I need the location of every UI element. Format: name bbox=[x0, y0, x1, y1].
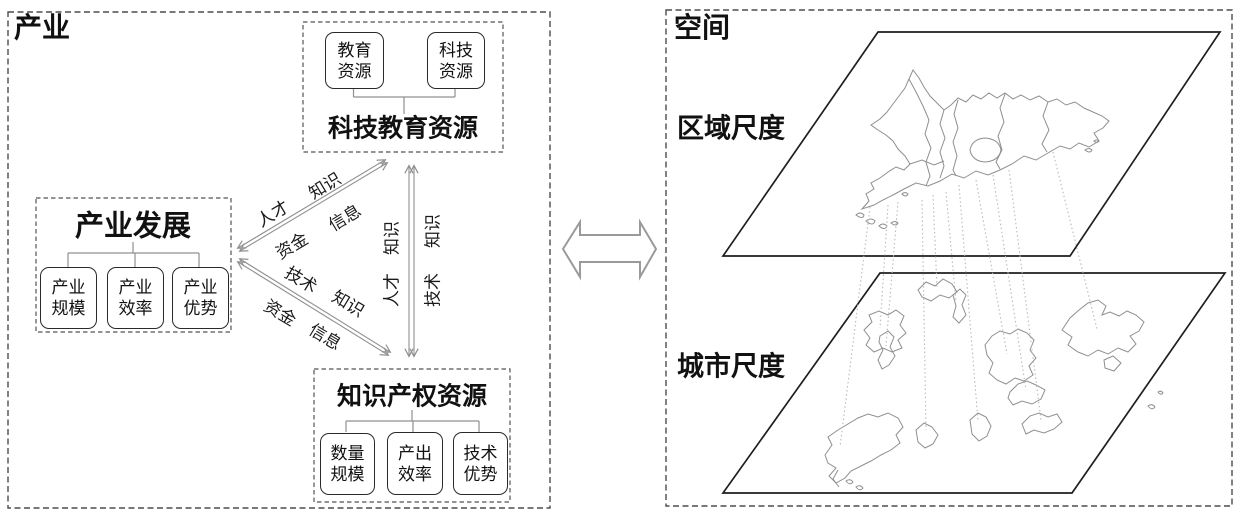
node-quantity-scale: 数量 规模 bbox=[320, 433, 375, 495]
arrow-dev-techedu-b bbox=[240, 163, 387, 251]
bidirectional-arrow-icon bbox=[563, 222, 656, 277]
industry-dev-tree-connector bbox=[68, 242, 199, 267]
diagram-graphics bbox=[0, 0, 1242, 517]
regional-scale-plane bbox=[723, 32, 1220, 256]
flow-label-talent-2: 人才 bbox=[384, 273, 401, 307]
node-science-tech-resources: 科技 资源 bbox=[427, 32, 485, 89]
regional-map-islets bbox=[856, 140, 1099, 229]
city-scale-label: 城市尺度 bbox=[677, 345, 785, 384]
flow-label-technology-2: 技术 bbox=[425, 273, 442, 307]
node-industry-advantage: 产业 优势 bbox=[172, 267, 229, 329]
ip-tree-connector bbox=[346, 410, 479, 432]
flow-label-knowledge-3: 知识 bbox=[384, 221, 401, 255]
ip-group-title: 知识产权资源 bbox=[337, 385, 487, 410]
space-panel-label: 空间 bbox=[674, 14, 730, 42]
arrow-dev-techedu-a bbox=[238, 160, 385, 248]
tech-edu-tree-connector bbox=[354, 87, 456, 114]
regional-scale-label: 区域尺度 bbox=[677, 107, 785, 146]
city-scale-plane bbox=[723, 273, 1225, 493]
space-panel-border bbox=[666, 10, 1232, 506]
node-industry-scale: 产业 规模 bbox=[40, 267, 97, 329]
industry-dev-group-title: 产业发展 bbox=[75, 213, 191, 242]
scale-projection-lines bbox=[840, 152, 1097, 447]
node-industry-efficiency: 产业 效率 bbox=[107, 267, 164, 329]
diagram-canvas: 产业 教育 资源 科技 资源 科技教育资源 产业发展 产业 规模 产业 效率 产… bbox=[0, 0, 1242, 517]
node-output-efficiency: 产出 效率 bbox=[387, 432, 443, 495]
tech-edu-group-title: 科技教育资源 bbox=[328, 117, 478, 142]
node-education-resources: 教育 资源 bbox=[325, 32, 384, 89]
industry-panel-label: 产业 bbox=[14, 14, 70, 42]
flow-label-knowledge-4: 知识 bbox=[425, 214, 442, 248]
node-technology-advantage: 技术 优势 bbox=[453, 432, 508, 495]
city-map-fragments bbox=[825, 279, 1163, 490]
regional-map-outline bbox=[856, 70, 1109, 229]
